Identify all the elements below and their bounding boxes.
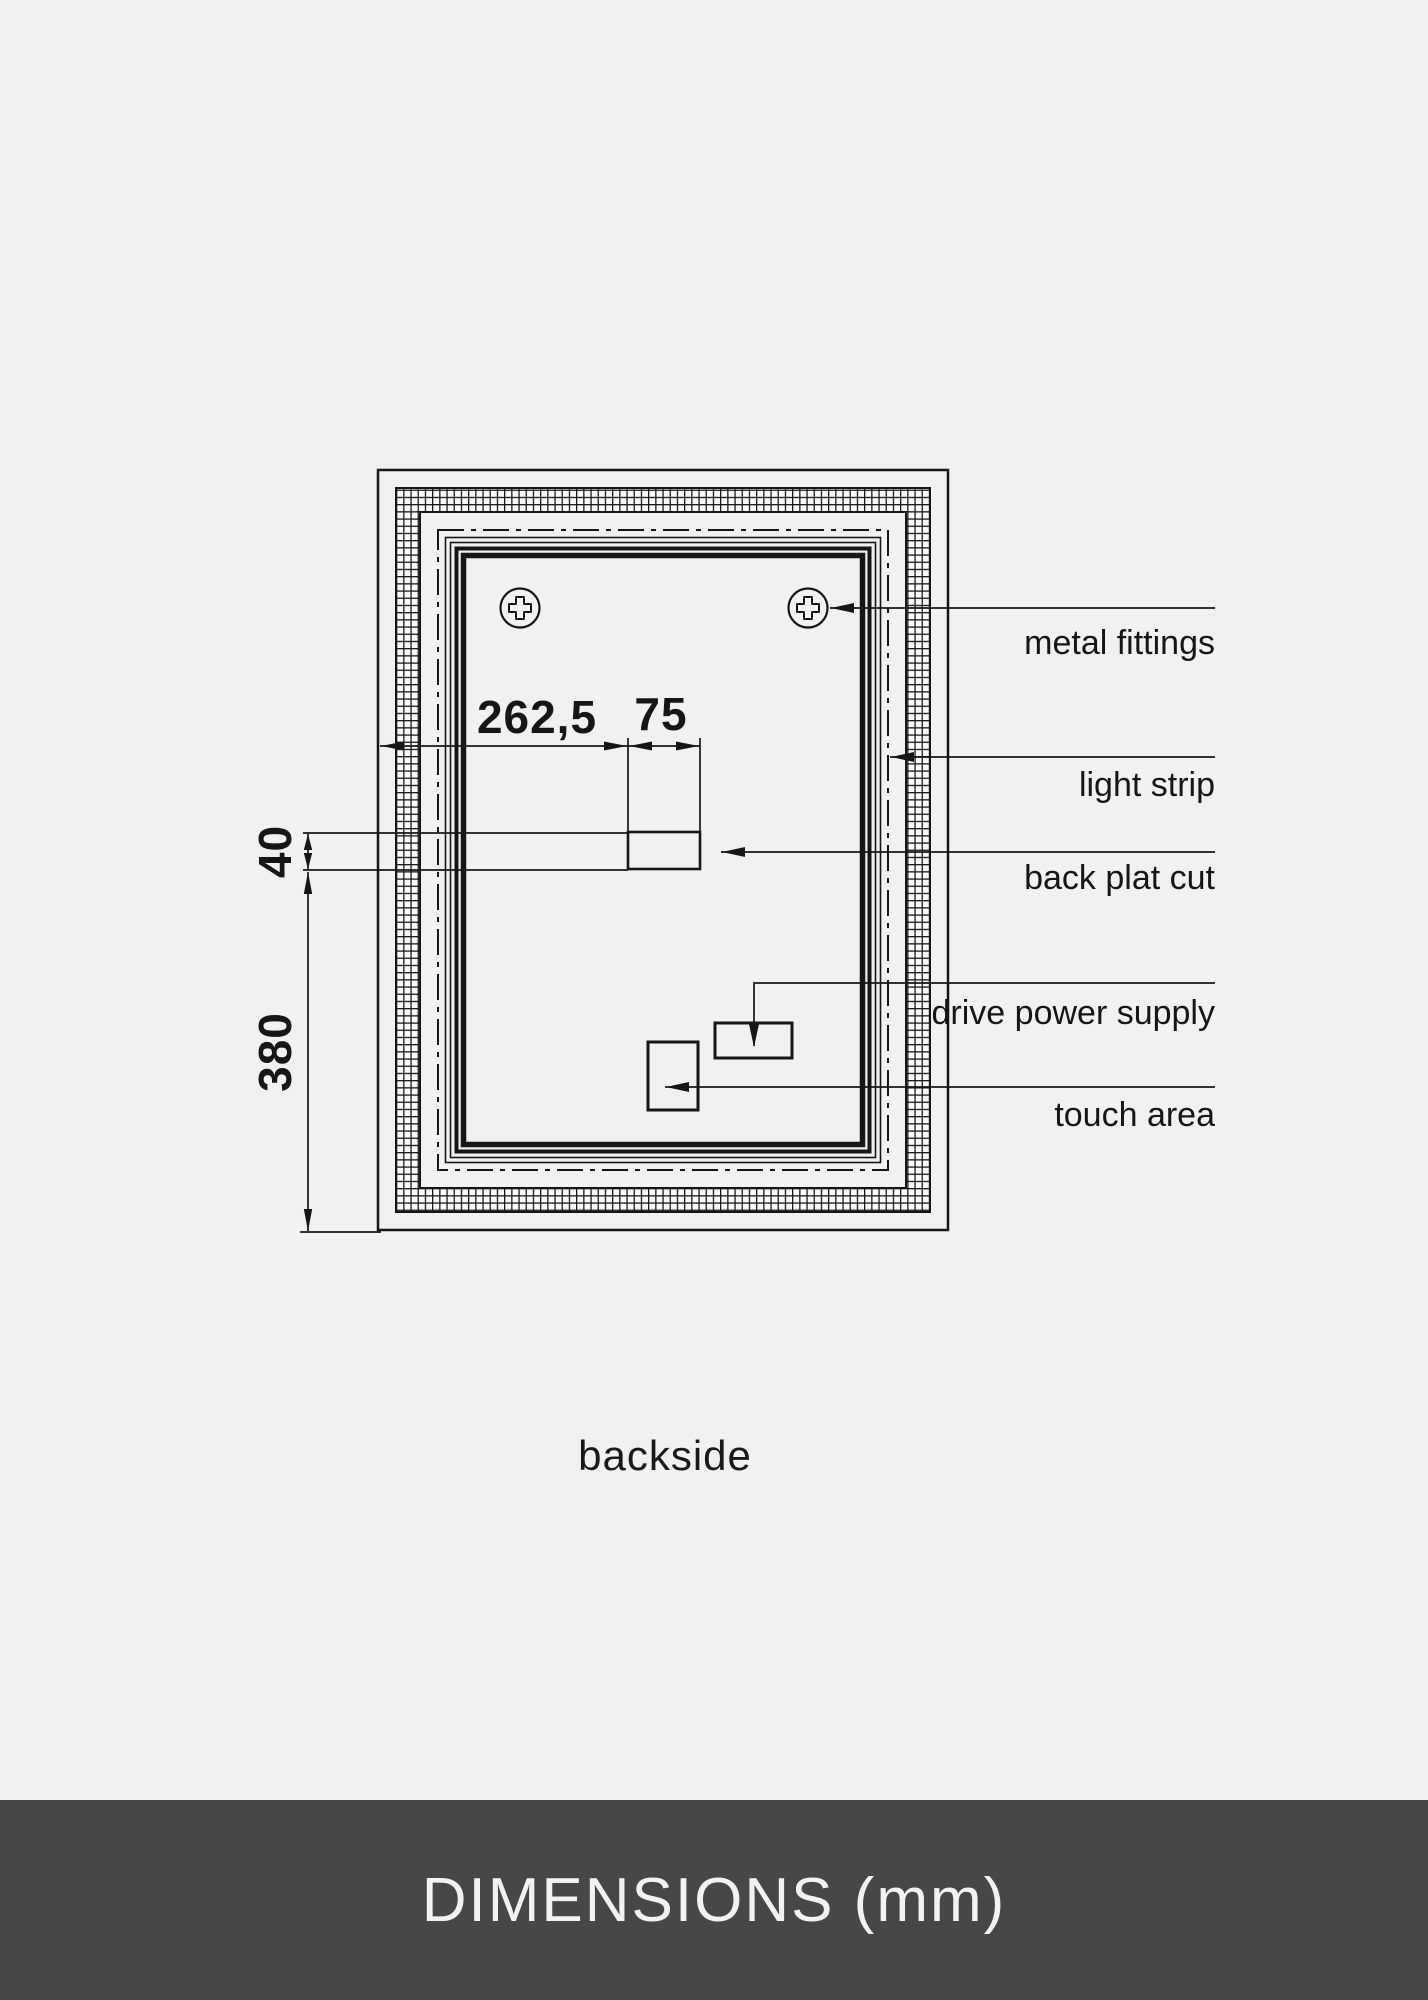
- backside-technical-drawing: 262,5 75 40 380 metal fittings light str…: [0, 0, 1428, 1800]
- callout-touch-area: touch area: [1054, 1096, 1215, 1134]
- dim-value-75: 75: [634, 688, 687, 740]
- dim-value-40: 40: [249, 825, 301, 878]
- mirror-frame: [378, 470, 948, 1230]
- callout-light-strip: light strip: [1079, 766, 1215, 804]
- footer-bar: DIMENSIONS (mm): [0, 1800, 1428, 2000]
- drawing-caption: backside: [578, 1432, 752, 1480]
- page: 262,5 75 40 380 metal fittings light str…: [0, 0, 1428, 2000]
- dim-value-262-5: 262,5: [477, 691, 597, 743]
- callout-back-plat-cut: back plat cut: [1024, 859, 1215, 897]
- callout-metal-fittings: metal fittings: [1024, 624, 1215, 662]
- dim-value-380: 380: [249, 1012, 301, 1092]
- callout-drive-power-supply: drive power supply: [932, 994, 1215, 1032]
- footer-title: DIMENSIONS (mm): [422, 1865, 1007, 1936]
